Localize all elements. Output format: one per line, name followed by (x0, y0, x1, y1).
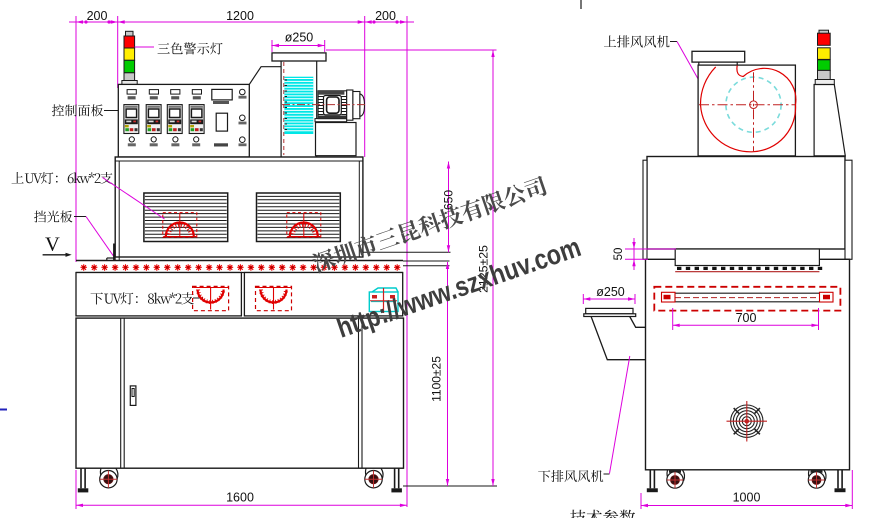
svg-text:1000: 1000 (733, 491, 761, 505)
svg-text:200: 200 (375, 9, 396, 23)
svg-text:1600: 1600 (226, 491, 254, 505)
svg-text:650: 650 (442, 190, 456, 210)
svg-text:ø250: ø250 (596, 285, 625, 299)
svg-text:1200: 1200 (226, 9, 254, 23)
svg-text:50: 50 (613, 248, 625, 261)
svg-text:ø250: ø250 (285, 31, 314, 45)
svg-text:200: 200 (87, 9, 108, 23)
svg-text:V: V (45, 233, 60, 255)
svg-text:1100±25: 1100±25 (430, 356, 444, 402)
svg-text:700: 700 (736, 311, 757, 325)
